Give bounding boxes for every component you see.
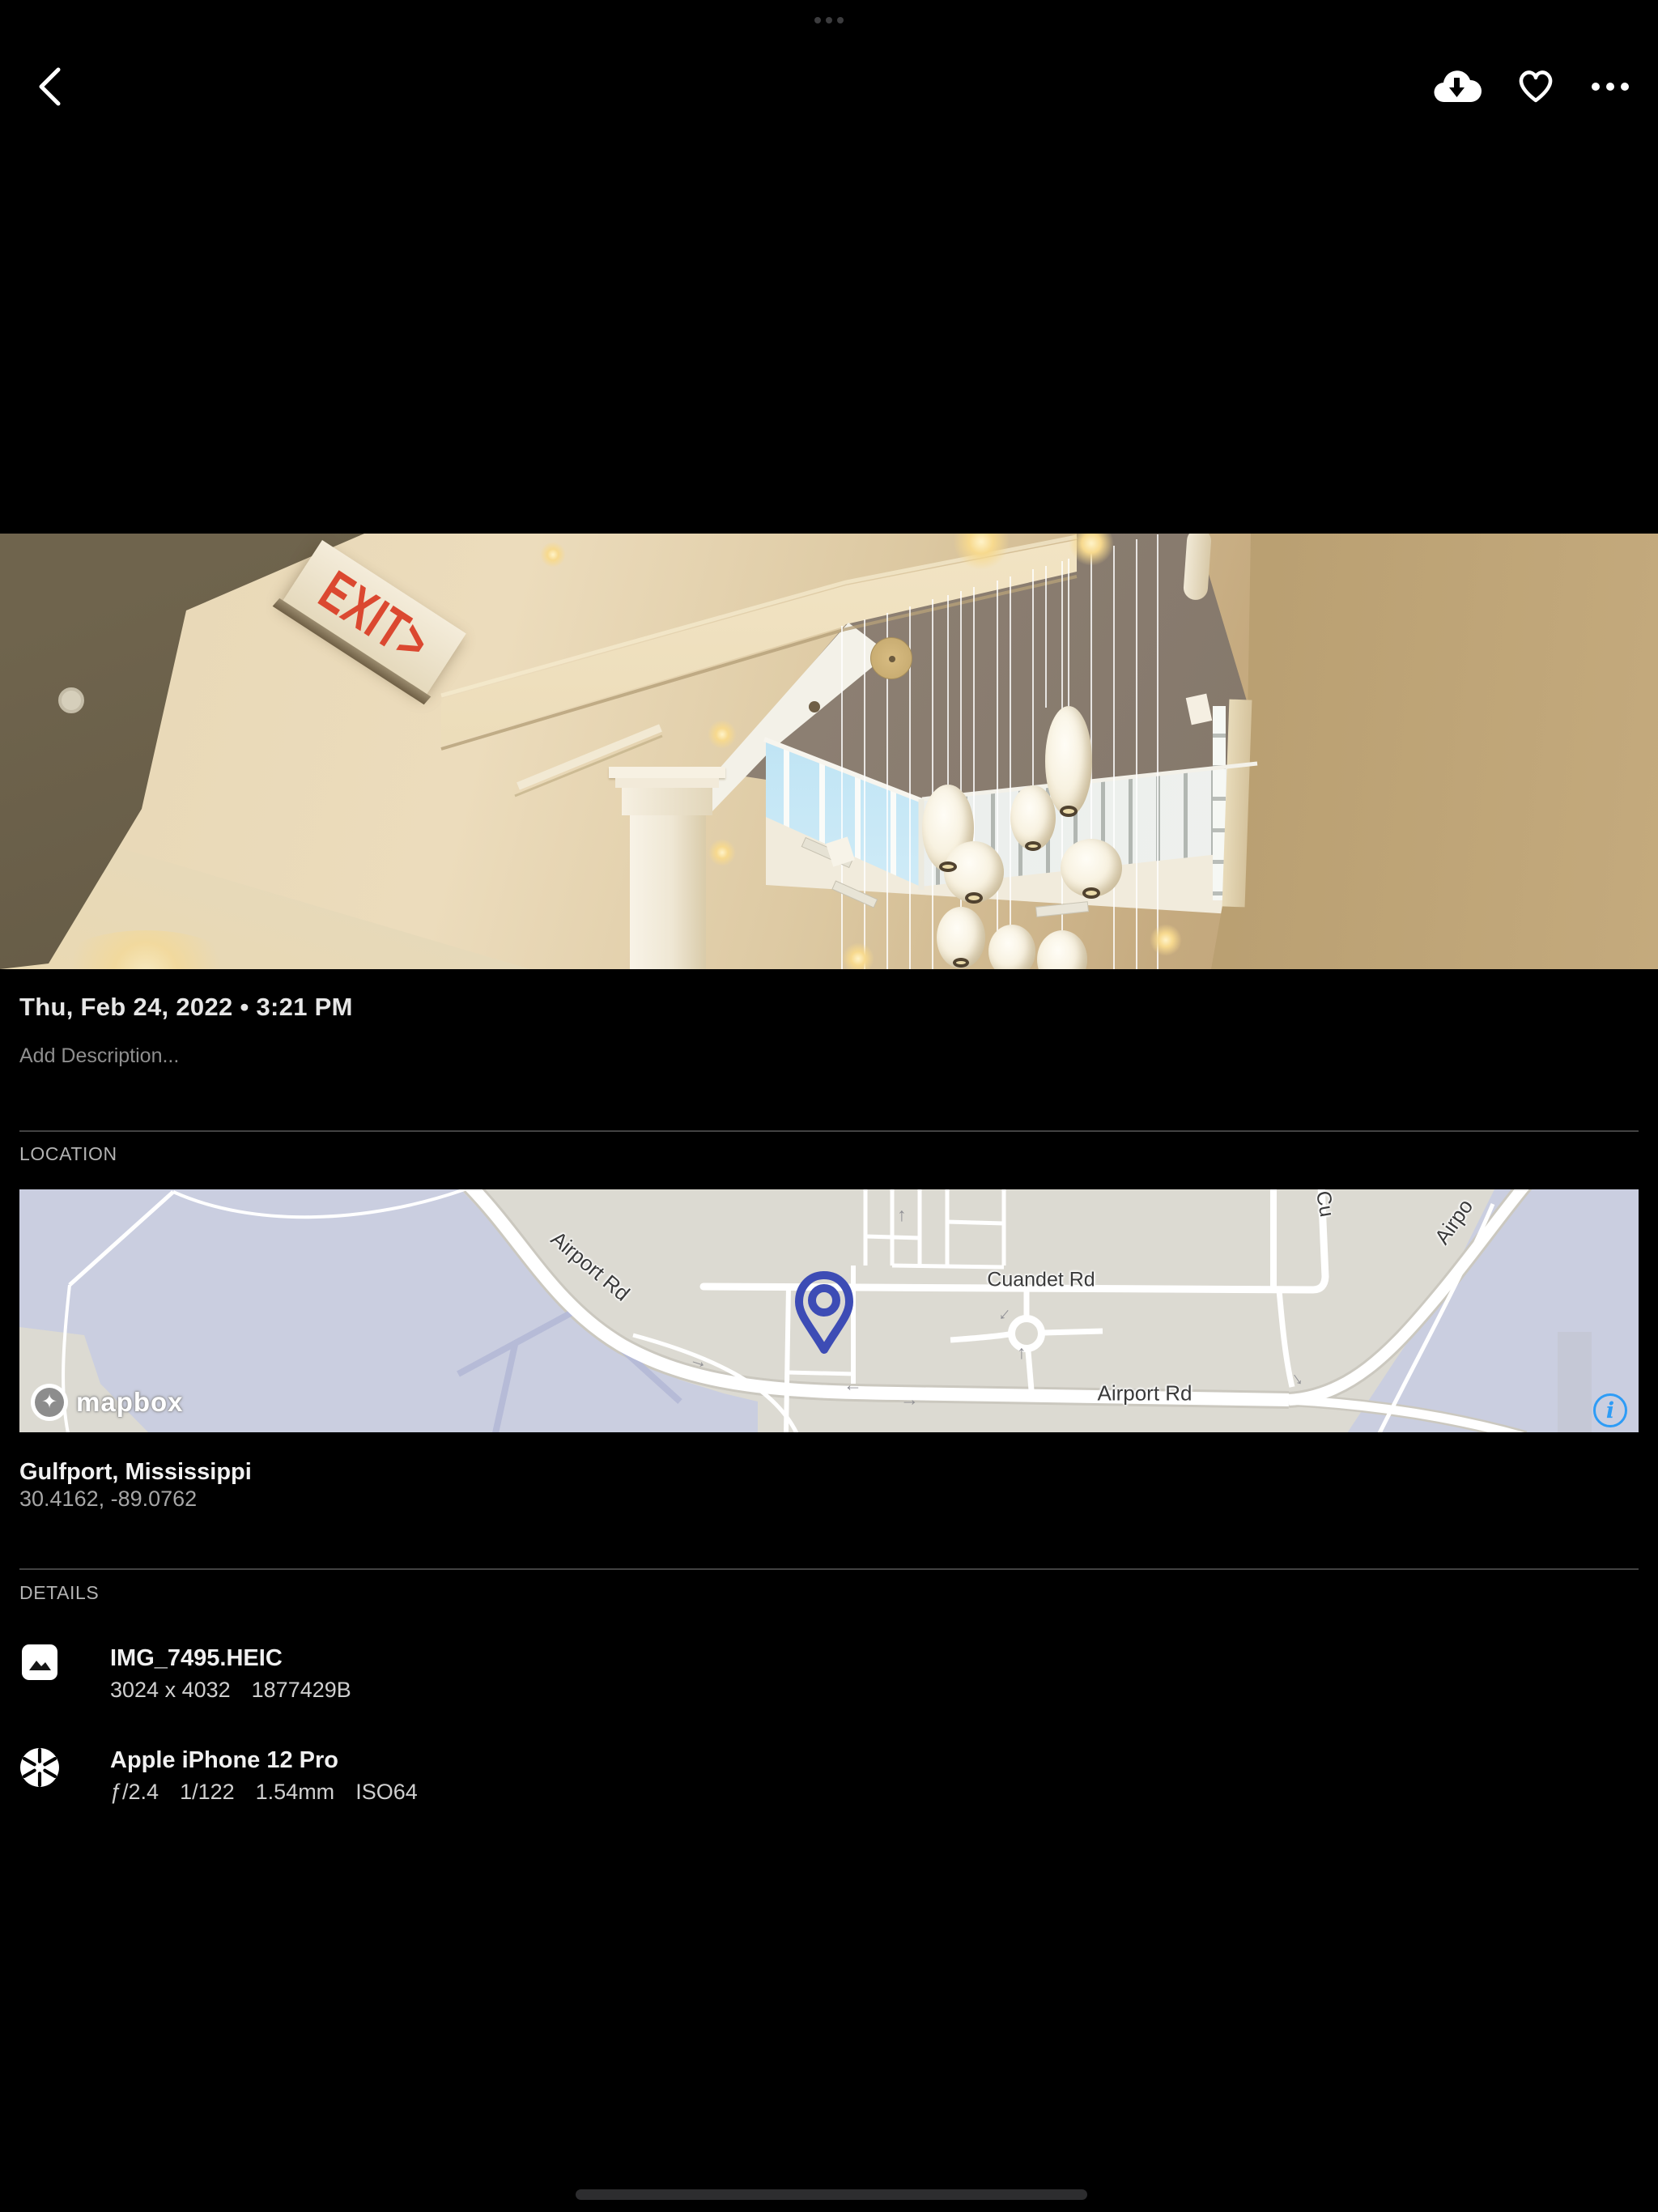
- recessed-light: [708, 839, 736, 866]
- camera-name: Apple iPhone 12 Pro: [110, 1747, 338, 1774]
- air-vent: [1036, 902, 1089, 917]
- file-specs: 3024 x 40321877429B: [110, 1678, 372, 1703]
- smoke-detector: [58, 687, 84, 713]
- taxiway-lines: [458, 1309, 680, 1432]
- file-dimensions: 3024 x 4032: [110, 1678, 231, 1702]
- home-indicator[interactable]: [576, 2189, 1087, 2200]
- ceiling-medallion-dot: [889, 656, 895, 662]
- road-label: Cuandet Rd: [987, 1269, 1095, 1292]
- mapbox-logo: ✦ mapbox: [31, 1384, 241, 1424]
- camera-row: Apple iPhone 12 Pro ƒ/2.41/1221.54mmISO6…: [0, 1742, 1658, 1815]
- image-file-icon: [21, 1644, 58, 1681]
- location-coordinates: 30.4162, -89.0762: [19, 1487, 197, 1512]
- file-size: 1877429B: [252, 1678, 351, 1702]
- recessed-light: [708, 720, 737, 749]
- air-vent: [832, 881, 878, 908]
- camera-aperture-icon: [19, 1747, 60, 1788]
- back-button[interactable]: [32, 65, 73, 108]
- heart-icon: [1516, 66, 1556, 105]
- oneway-arrow: ←: [844, 1374, 862, 1396]
- camera-specs: ƒ/2.41/1221.54mmISO64: [110, 1780, 439, 1805]
- file-row: IMG_7495.HEIC 3024 x 40321877429B: [0, 1640, 1658, 1713]
- lamp-cables: [842, 534, 1158, 969]
- location-section-label: LOCATION: [19, 1143, 117, 1165]
- photo-linework: [0, 534, 1658, 969]
- camera-shutter: 1/122: [180, 1780, 235, 1804]
- map-building: [1558, 1332, 1592, 1432]
- oneway-arrow: ↑: [897, 1204, 907, 1226]
- more-menu-button[interactable]: [1588, 78, 1639, 96]
- camera-aperture: ƒ/2.4: [110, 1780, 159, 1804]
- download-button[interactable]: [1430, 66, 1483, 107]
- oneway-arrow: ↑: [1017, 1342, 1027, 1363]
- map-info-button[interactable]: i: [1593, 1393, 1627, 1427]
- recessed-light: [540, 542, 566, 568]
- road-label: Airport Rd: [1097, 1381, 1192, 1406]
- divider: [19, 1568, 1639, 1570]
- camera-iso: ISO64: [355, 1780, 418, 1804]
- map-roundabout: [1008, 1315, 1045, 1352]
- recessed-light: [1150, 924, 1182, 956]
- recessed-light: [842, 942, 874, 969]
- camera-focal-length: 1.54mm: [256, 1780, 335, 1804]
- mapbox-logo-icon: ✦: [31, 1384, 68, 1421]
- cloud-download-icon: [1430, 66, 1483, 107]
- mapbox-wordmark: mapbox: [76, 1387, 184, 1418]
- favorite-button[interactable]: [1516, 66, 1556, 105]
- photo-detail-screen: EXIT>: [0, 0, 1658, 2212]
- ceiling-knob: [809, 701, 820, 713]
- back-chevron-icon: [32, 65, 73, 108]
- map-pin-icon: [793, 1270, 855, 1355]
- pendant-lamp: [1010, 785, 1056, 850]
- photo-image[interactable]: EXIT>: [0, 534, 1658, 969]
- photo-date: Thu, Feb 24, 2022 • 3:21 PM: [19, 993, 353, 1022]
- ellipsis-icon: [1588, 78, 1639, 96]
- pendant-lamp: [1045, 706, 1092, 816]
- description-field[interactable]: Add Description...: [19, 1044, 179, 1068]
- speaker: [1186, 694, 1213, 725]
- oneway-arrow: →: [900, 1389, 919, 1410]
- info-glyph: i: [1606, 1400, 1614, 1422]
- divider: [19, 1130, 1639, 1132]
- road-label: Cu: [1311, 1189, 1338, 1219]
- location-map[interactable]: → ← → ↑ ↑ ↓ ↓ Airport Rd Cuandet Rd Airp…: [19, 1189, 1639, 1432]
- location-place: Gulfport, Mississippi: [19, 1459, 252, 1486]
- details-section-label: DETAILS: [19, 1582, 99, 1604]
- file-name: IMG_7495.HEIC: [110, 1645, 283, 1672]
